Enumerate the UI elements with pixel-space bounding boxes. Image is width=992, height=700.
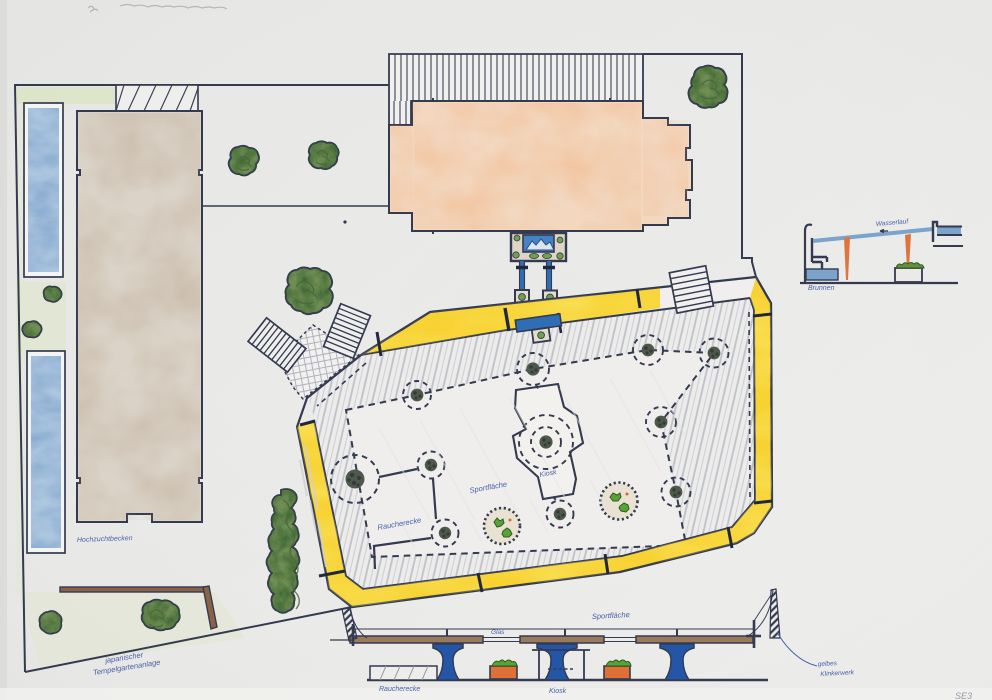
svg-text:SE3: SE3: [955, 691, 972, 700]
svg-text:Glas: Glas: [491, 629, 505, 636]
svg-text:Kiosk: Kiosk: [549, 688, 567, 695]
svg-text:gelbes: gelbes: [818, 660, 838, 668]
svg-text:Brunnen: Brunnen: [808, 285, 835, 292]
svg-text:Raucherecke: Raucherecke: [379, 686, 420, 693]
